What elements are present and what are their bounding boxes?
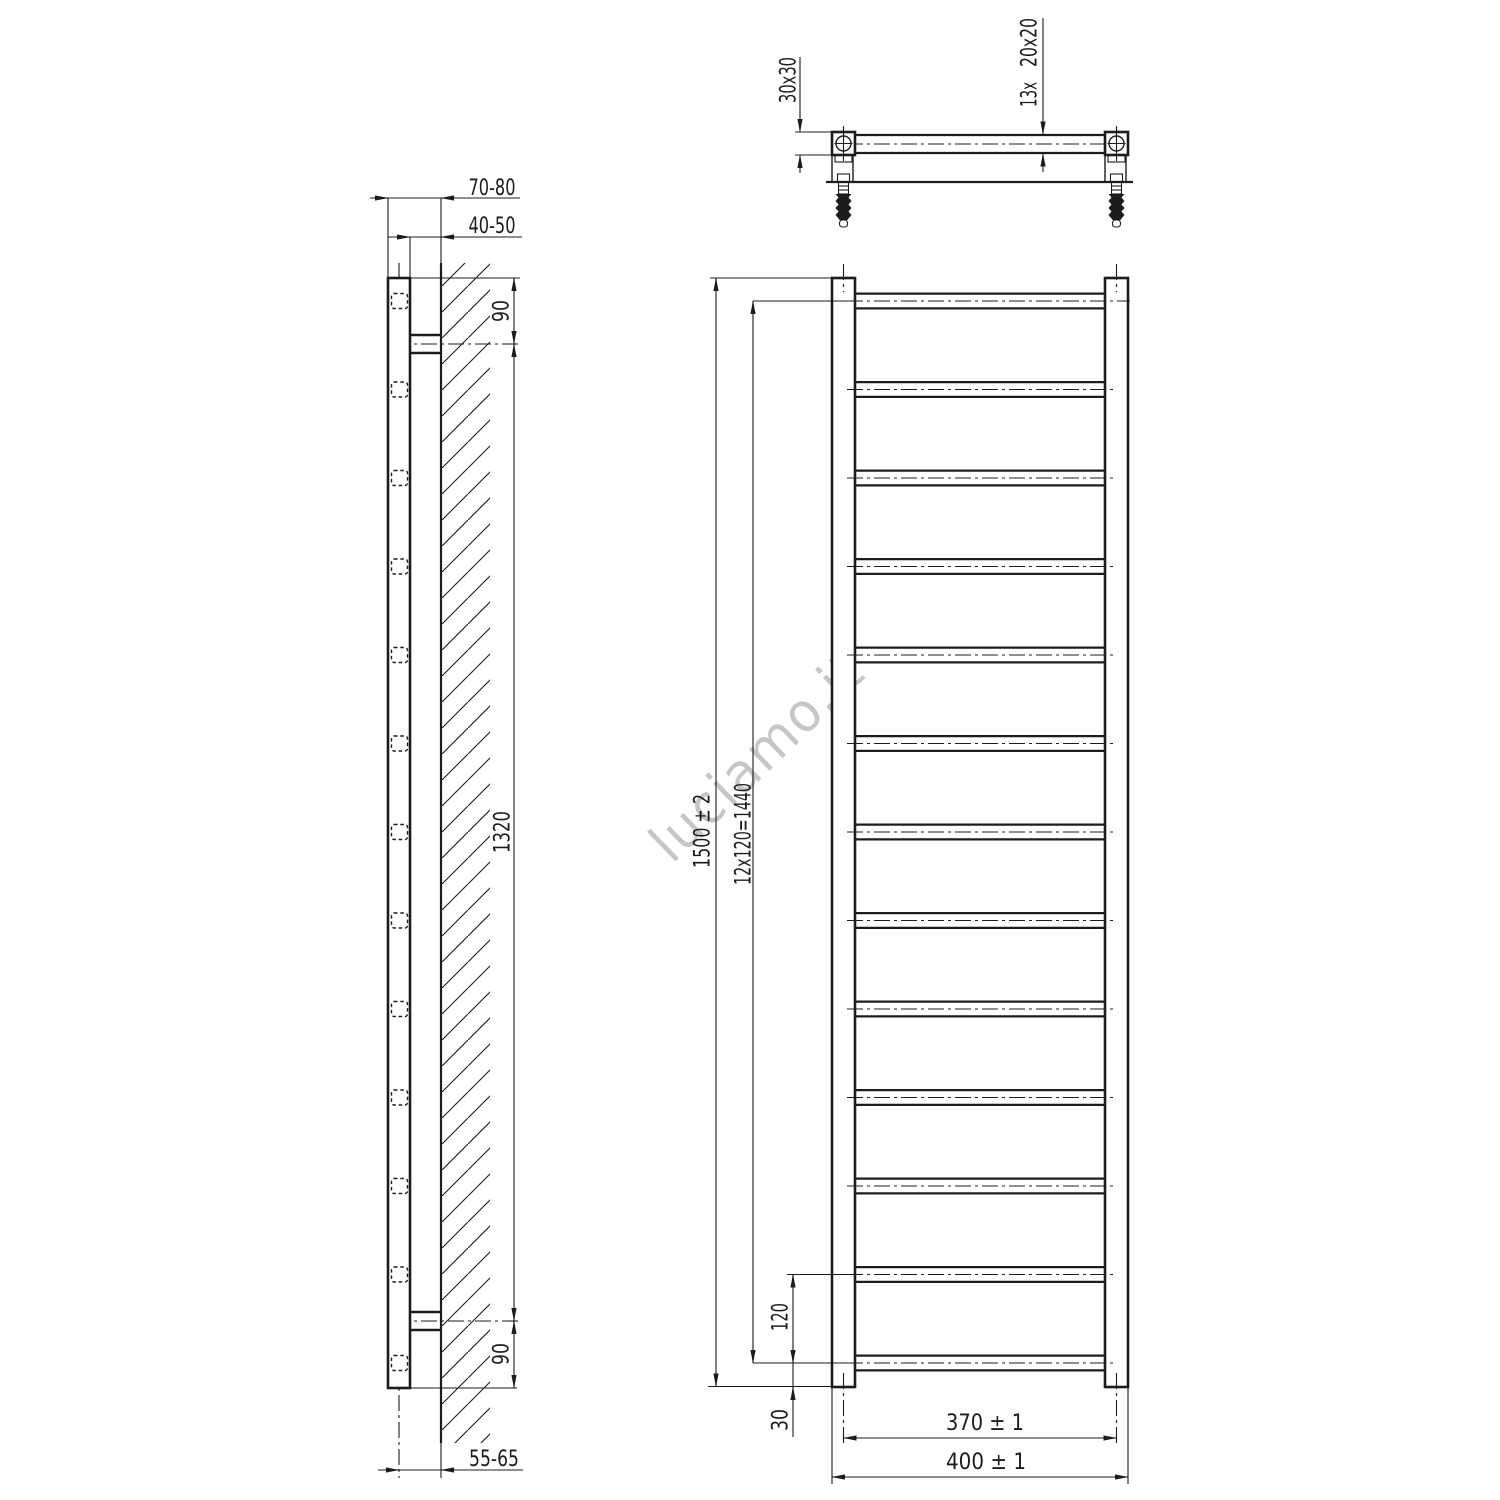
front-view: 1500 ± 2 12x120=1440 120 30 370 ± 1 400 … xyxy=(691,264,1131,1484)
dim-label-rung-section: 20x20 xyxy=(1018,18,1043,67)
dim-label-wall-to-rung-axis: 55-65 xyxy=(469,1447,519,1472)
right-tube xyxy=(1105,278,1128,1387)
dim-label-rung-pitch: 12x120=1440 xyxy=(732,783,757,885)
top-view: 30x30 13x 20x20 xyxy=(777,18,1134,227)
dim-label-tube-section: 30x30 xyxy=(777,57,802,103)
wall-anchor-right xyxy=(1109,174,1125,227)
dim-label-wall-to-back: 40-50 xyxy=(469,214,516,239)
wall-anchor-left xyxy=(836,174,852,227)
dim-label-last-pitch: 120 xyxy=(769,1303,794,1331)
dim-label-bottom-offset: 30 xyxy=(769,1409,794,1431)
dim-label-total-height: 1500 ± 2 xyxy=(691,794,716,868)
dim-label-bottom-bracket: 90 xyxy=(490,1343,515,1365)
wall-hatch xyxy=(442,263,490,1443)
front-view-arrows xyxy=(716,278,1128,1477)
dim-label-total-width: 400 ± 1 xyxy=(946,1450,1026,1475)
dim-label-axis-width: 370 ± 1 xyxy=(946,1411,1024,1436)
dim-label-top-bracket: 90 xyxy=(490,300,515,322)
dim-label-bracket-span: 1320 xyxy=(491,811,516,853)
side-view: 70-80 40-50 90 1320 90 55-65 xyxy=(370,176,523,1478)
dim-label-wall-to-front: 70-80 xyxy=(469,176,516,201)
radiator-technical-drawing: luciamo.it xyxy=(0,0,1500,1500)
dim-label-rung-count: 13x xyxy=(1018,82,1043,107)
